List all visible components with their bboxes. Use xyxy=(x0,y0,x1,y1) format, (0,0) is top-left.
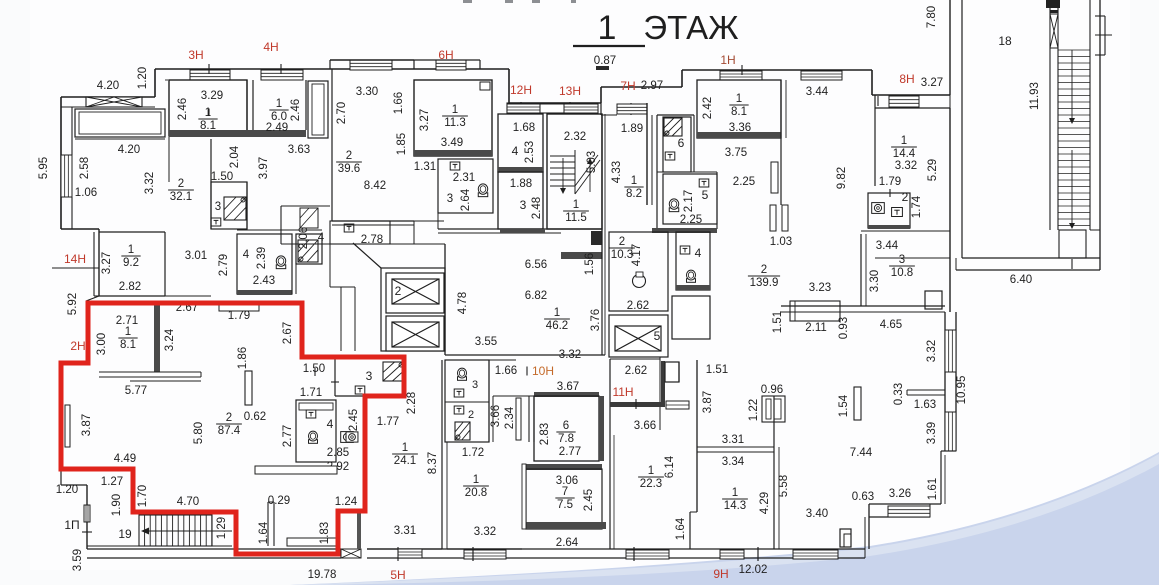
svg-text:0.29: 0.29 xyxy=(268,495,290,507)
svg-text:1: 1 xyxy=(125,326,131,338)
svg-text:2.64: 2.64 xyxy=(460,188,472,211)
svg-text:4.17: 4.17 xyxy=(631,244,643,266)
svg-text:2.25: 2.25 xyxy=(733,176,755,188)
svg-text:2.04: 2.04 xyxy=(229,145,241,168)
svg-text:2.67: 2.67 xyxy=(282,322,294,344)
svg-text:3.27: 3.27 xyxy=(419,109,431,131)
svg-text:3.29: 3.29 xyxy=(201,90,223,102)
svg-text:3.76: 3.76 xyxy=(590,309,602,331)
svg-text:8.37: 8.37 xyxy=(427,452,439,474)
svg-text:2.77: 2.77 xyxy=(282,425,294,447)
svg-text:1.79: 1.79 xyxy=(879,176,901,188)
svg-text:1.68: 1.68 xyxy=(513,122,535,134)
svg-text:2.43: 2.43 xyxy=(253,275,275,287)
svg-text:6: 6 xyxy=(678,136,685,150)
svg-text:1.56: 1.56 xyxy=(584,253,596,275)
svg-text:8Н: 8Н xyxy=(899,72,914,86)
svg-text:11.93: 11.93 xyxy=(1029,82,1041,110)
svg-text:8.2: 8.2 xyxy=(626,188,642,200)
svg-text:2.62: 2.62 xyxy=(625,365,647,377)
svg-text:2.64: 2.64 xyxy=(556,537,579,549)
svg-text:32.1: 32.1 xyxy=(170,191,192,203)
svg-text:2: 2 xyxy=(395,284,402,298)
svg-text:1.61: 1.61 xyxy=(927,478,939,500)
svg-text:5.29: 5.29 xyxy=(927,159,939,181)
svg-text:2: 2 xyxy=(468,409,474,421)
svg-text:1.83: 1.83 xyxy=(319,522,331,544)
svg-text:1.20: 1.20 xyxy=(137,67,149,89)
svg-text:2.31: 2.31 xyxy=(453,172,475,184)
svg-text:10.95: 10.95 xyxy=(956,376,968,405)
svg-text:13Н: 13Н xyxy=(559,84,581,98)
svg-text:0.62: 0.62 xyxy=(244,411,266,423)
svg-text:5: 5 xyxy=(702,188,709,202)
svg-text:3.34: 3.34 xyxy=(722,456,745,468)
svg-text:14Н: 14Н xyxy=(64,252,86,266)
svg-text:2.97: 2.97 xyxy=(641,80,663,92)
svg-text:0.93: 0.93 xyxy=(838,317,850,339)
svg-text:3: 3 xyxy=(472,379,478,391)
svg-text:4.20: 4.20 xyxy=(97,80,119,92)
svg-text:10.8: 10.8 xyxy=(891,267,913,279)
svg-text:2.17: 2.17 xyxy=(683,190,695,212)
svg-text:2.82: 2.82 xyxy=(119,281,141,293)
svg-text:0.33: 0.33 xyxy=(893,383,905,405)
svg-text:3.23: 3.23 xyxy=(809,282,831,294)
svg-text:2: 2 xyxy=(226,412,232,424)
svg-text:6.56: 6.56 xyxy=(525,259,547,271)
svg-text:1.70: 1.70 xyxy=(137,485,149,507)
svg-text:1.50: 1.50 xyxy=(303,363,325,375)
svg-text:3.44: 3.44 xyxy=(806,86,829,98)
svg-text:3.59: 3.59 xyxy=(72,549,84,571)
svg-text:12.02: 12.02 xyxy=(739,564,768,576)
svg-text:1: 1 xyxy=(402,442,408,454)
svg-text:4.20: 4.20 xyxy=(118,144,140,156)
svg-text:14.4: 14.4 xyxy=(893,148,916,160)
svg-text:5.03: 5.03 xyxy=(586,151,598,173)
svg-text:1.89: 1.89 xyxy=(621,123,643,135)
svg-text:8.1: 8.1 xyxy=(200,120,216,132)
svg-text:3.39: 3.39 xyxy=(926,422,938,444)
svg-text:1.50: 1.50 xyxy=(211,171,233,183)
svg-text:3.87: 3.87 xyxy=(702,391,714,413)
svg-text:4Н: 4Н xyxy=(263,40,278,54)
svg-text:11.3: 11.3 xyxy=(444,117,466,129)
svg-text:24.1: 24.1 xyxy=(394,455,416,467)
svg-text:8.1: 8.1 xyxy=(120,339,136,351)
svg-text:2.42: 2.42 xyxy=(702,97,714,119)
svg-text:3.26: 3.26 xyxy=(889,488,911,500)
svg-text:1.71: 1.71 xyxy=(300,387,322,399)
svg-text:3.32: 3.32 xyxy=(474,526,496,538)
svg-text:2: 2 xyxy=(178,178,184,190)
svg-text:7: 7 xyxy=(562,486,568,498)
svg-text:2.32: 2.32 xyxy=(564,131,586,143)
svg-text:9.82: 9.82 xyxy=(836,167,848,189)
svg-text:1: 1 xyxy=(573,199,579,211)
svg-text:1.24: 1.24 xyxy=(335,496,358,508)
svg-text:3.36: 3.36 xyxy=(729,122,751,134)
svg-text:5Н: 5Н xyxy=(390,568,405,582)
svg-text:3: 3 xyxy=(899,254,905,266)
svg-text:3.32: 3.32 xyxy=(559,349,581,361)
svg-text:0.87: 0.87 xyxy=(594,55,616,67)
svg-text:1.79: 1.79 xyxy=(228,310,250,322)
svg-text:1.29: 1.29 xyxy=(216,517,228,539)
svg-text:2Н: 2Н xyxy=(70,339,85,353)
svg-text:1.88: 1.88 xyxy=(510,178,532,190)
svg-text:2.45: 2.45 xyxy=(583,489,595,511)
svg-text:1.63: 1.63 xyxy=(914,399,936,411)
svg-text:4: 4 xyxy=(695,246,702,260)
svg-text:1.27: 1.27 xyxy=(101,476,123,488)
svg-text:5.77: 5.77 xyxy=(125,385,147,397)
svg-text:1Н: 1Н xyxy=(720,53,735,67)
svg-text:5.95: 5.95 xyxy=(38,157,50,179)
svg-text:3: 3 xyxy=(520,198,527,212)
svg-text:1П: 1П xyxy=(64,518,79,532)
svg-text:22.3: 22.3 xyxy=(640,478,662,490)
svg-text:3.63: 3.63 xyxy=(288,144,310,156)
svg-text:7.44: 7.44 xyxy=(850,447,873,459)
svg-text:2: 2 xyxy=(346,150,352,162)
svg-text:2.46: 2.46 xyxy=(177,98,189,120)
svg-text:9.2: 9.2 xyxy=(123,257,139,269)
svg-text:9Н: 9Н xyxy=(713,567,728,581)
svg-text:2.83: 2.83 xyxy=(539,423,551,445)
svg-text:12Н: 12Н xyxy=(510,83,532,97)
svg-text:1.86: 1.86 xyxy=(237,347,249,369)
svg-text:2: 2 xyxy=(761,264,767,276)
svg-text:1.66: 1.66 xyxy=(393,92,405,114)
svg-text:11Н: 11Н xyxy=(612,385,633,399)
svg-text:5.92: 5.92 xyxy=(67,293,79,315)
svg-text:87.4: 87.4 xyxy=(218,425,241,437)
svg-text:3.24: 3.24 xyxy=(164,328,176,351)
svg-text:5.80: 5.80 xyxy=(193,422,205,444)
svg-text:2: 2 xyxy=(902,190,909,204)
svg-text:0.63: 0.63 xyxy=(852,491,874,503)
svg-text:6Н: 6Н xyxy=(438,48,453,62)
svg-text:1.03: 1.03 xyxy=(770,236,792,248)
svg-text:2.06: 2.06 xyxy=(298,227,310,249)
svg-text:2.48: 2.48 xyxy=(531,197,543,219)
svg-text:2.77: 2.77 xyxy=(559,446,581,458)
svg-text:3: 3 xyxy=(215,201,221,213)
svg-text:3.01: 3.01 xyxy=(185,250,207,262)
svg-text:3: 3 xyxy=(366,369,373,383)
svg-text:1: 1 xyxy=(205,107,211,119)
svg-text:3.27: 3.27 xyxy=(921,77,943,89)
svg-text:4: 4 xyxy=(318,232,325,244)
svg-text:3Н: 3Н xyxy=(188,48,203,62)
svg-text:1.74: 1.74 xyxy=(911,195,923,218)
svg-text:20.8: 20.8 xyxy=(465,487,487,499)
svg-text:6.14: 6.14 xyxy=(664,455,676,478)
svg-text:11.5: 11.5 xyxy=(565,212,587,224)
svg-text:1: 1 xyxy=(276,98,282,110)
svg-text:1: 1 xyxy=(631,175,637,187)
svg-text:18: 18 xyxy=(998,34,1012,48)
svg-text:6.82: 6.82 xyxy=(525,290,547,302)
svg-text:139.9: 139.9 xyxy=(750,277,779,289)
svg-text:2.45: 2.45 xyxy=(348,409,360,431)
svg-text:1.51: 1.51 xyxy=(706,364,728,376)
svg-text:2.11: 2.11 xyxy=(805,322,827,334)
svg-text:4.29: 4.29 xyxy=(759,492,771,514)
svg-text:5.58: 5.58 xyxy=(778,475,790,497)
svg-text:3.67: 3.67 xyxy=(557,381,579,393)
svg-text:1.66: 1.66 xyxy=(495,365,517,377)
svg-text:3.75: 3.75 xyxy=(725,147,747,159)
svg-text:2.25: 2.25 xyxy=(680,214,702,226)
svg-text:6.40: 6.40 xyxy=(1010,274,1032,286)
svg-text:3.40: 3.40 xyxy=(806,508,828,520)
svg-text:4: 4 xyxy=(243,249,250,261)
svg-text:2.78: 2.78 xyxy=(361,234,383,246)
svg-text:2.46: 2.46 xyxy=(290,99,302,121)
svg-text:3.97: 3.97 xyxy=(258,157,270,179)
svg-text:3.31: 3.31 xyxy=(394,525,416,537)
svg-text:1.20: 1.20 xyxy=(56,484,78,496)
svg-text:7.8: 7.8 xyxy=(558,433,574,445)
svg-text:2.34: 2.34 xyxy=(504,406,516,429)
svg-text:ЭТАЖ: ЭТАЖ xyxy=(643,9,739,46)
svg-text:1.90: 1.90 xyxy=(111,494,123,516)
svg-text:1.31: 1.31 xyxy=(414,161,436,173)
svg-text:3.87: 3.87 xyxy=(81,414,93,436)
svg-text:1: 1 xyxy=(598,9,617,47)
svg-text:3.00: 3.00 xyxy=(96,333,108,355)
svg-text:3.31: 3.31 xyxy=(722,434,744,446)
svg-text:1.77: 1.77 xyxy=(377,416,399,428)
svg-text:2.62: 2.62 xyxy=(627,300,649,312)
svg-text:2.53: 2.53 xyxy=(524,141,536,163)
svg-text:1: 1 xyxy=(128,244,134,256)
svg-text:46.2: 46.2 xyxy=(546,320,568,332)
svg-text:3.27: 3.27 xyxy=(101,252,113,274)
svg-text:2.58: 2.58 xyxy=(79,157,91,179)
svg-text:3: 3 xyxy=(447,193,453,205)
svg-text:1: 1 xyxy=(648,465,654,477)
svg-text:4.78: 4.78 xyxy=(457,292,469,314)
svg-text:8.42: 8.42 xyxy=(364,180,386,192)
svg-text:4.70: 4.70 xyxy=(177,496,199,508)
svg-text:4.33: 4.33 xyxy=(611,161,623,183)
svg-text:2.28: 2.28 xyxy=(406,392,418,414)
svg-text:4: 4 xyxy=(327,417,334,431)
svg-text:5: 5 xyxy=(654,329,661,343)
svg-text:19.78: 19.78 xyxy=(308,569,337,581)
svg-text:1.54: 1.54 xyxy=(838,394,850,417)
svg-text:2.79: 2.79 xyxy=(218,254,230,276)
svg-text:8.1: 8.1 xyxy=(731,106,747,118)
svg-text:1: 1 xyxy=(732,487,738,499)
svg-text:3.32: 3.32 xyxy=(926,340,938,362)
svg-text:3.32: 3.32 xyxy=(895,160,917,172)
svg-text:3.30: 3.30 xyxy=(869,270,881,292)
svg-text:2.85: 2.85 xyxy=(327,447,349,459)
svg-text:10Н: 10Н xyxy=(532,364,554,378)
svg-text:1: 1 xyxy=(554,307,560,319)
svg-text:19: 19 xyxy=(118,527,132,541)
svg-text:1: 1 xyxy=(736,93,742,105)
svg-text:3.44: 3.44 xyxy=(876,240,899,252)
svg-text:3.66: 3.66 xyxy=(490,405,502,427)
svg-text:7Н: 7Н xyxy=(620,79,635,93)
svg-text:2.49: 2.49 xyxy=(266,122,288,134)
svg-text:2.39: 2.39 xyxy=(256,247,268,269)
svg-text:10.3: 10.3 xyxy=(611,249,633,261)
svg-text:3.30: 3.30 xyxy=(356,86,378,98)
svg-text:3.06: 3.06 xyxy=(556,475,578,487)
svg-text:1.06: 1.06 xyxy=(75,187,97,199)
svg-text:6: 6 xyxy=(563,420,569,432)
svg-text:1.85: 1.85 xyxy=(396,133,408,155)
svg-text:3.49: 3.49 xyxy=(441,137,463,149)
svg-text:2: 2 xyxy=(619,236,625,248)
svg-text:1: 1 xyxy=(901,135,907,147)
svg-text:4.49: 4.49 xyxy=(114,453,136,465)
svg-text:0.96: 0.96 xyxy=(761,384,783,396)
svg-text:7.5: 7.5 xyxy=(557,499,573,511)
svg-text:2.70: 2.70 xyxy=(336,102,348,124)
svg-text:1: 1 xyxy=(452,104,458,116)
svg-text:1: 1 xyxy=(473,474,479,486)
svg-text:4: 4 xyxy=(512,144,519,158)
svg-text:1.64: 1.64 xyxy=(675,517,687,540)
svg-text:3.66: 3.66 xyxy=(634,420,656,432)
svg-text:39.6: 39.6 xyxy=(338,163,360,175)
svg-text:3.55: 3.55 xyxy=(475,336,497,348)
svg-text:1.51: 1.51 xyxy=(772,311,784,333)
svg-text:4.65: 4.65 xyxy=(880,319,902,331)
svg-text:14.3: 14.3 xyxy=(724,500,746,512)
svg-text:1.22: 1.22 xyxy=(748,399,760,421)
svg-text:3.32: 3.32 xyxy=(144,172,156,194)
svg-text:1.72: 1.72 xyxy=(462,447,484,459)
svg-text:7.80: 7.80 xyxy=(926,6,938,28)
